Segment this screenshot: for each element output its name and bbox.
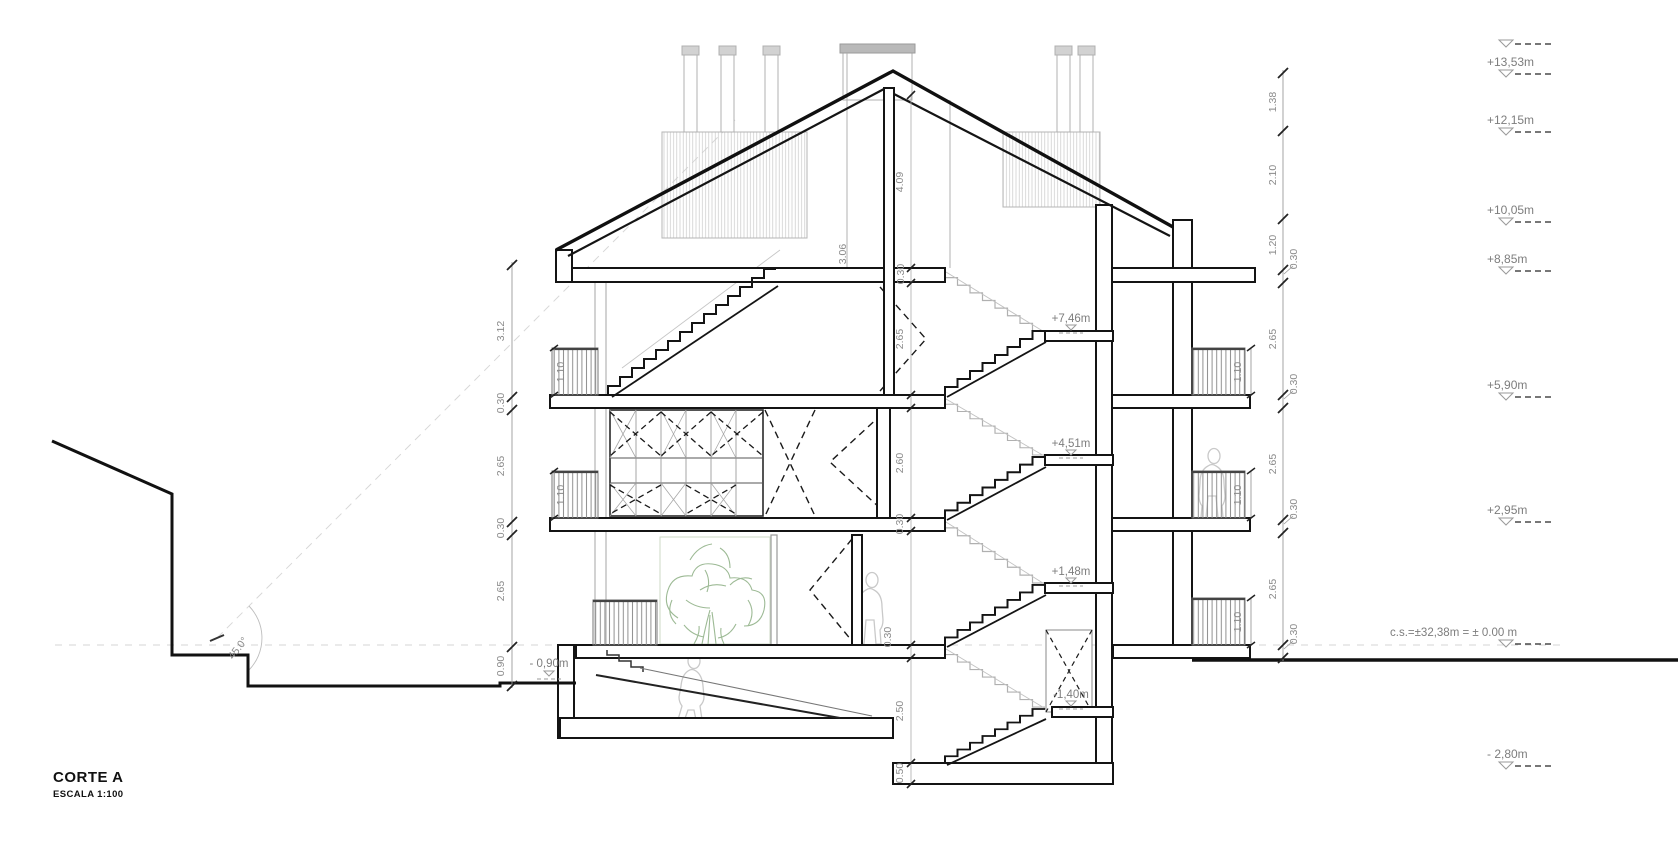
right-outer-wall [1173,220,1192,658]
dim-label: 0.90 [495,656,507,677]
dim-label: 0.30 [495,518,507,539]
roof-inner-line [894,94,1170,236]
dim-label: 2.65 [495,581,507,602]
ramp-line [640,668,872,716]
dim-label: 1.10 [1232,612,1244,633]
level-label: +1,48m [1052,566,1091,578]
dim-label: 4.09 [894,172,906,193]
chimney-stack [765,55,778,132]
chimney-cap [763,46,780,55]
level-label: +2,95m [1487,503,1527,517]
dim-label: 2.65 [1267,579,1279,600]
garage-ramp [596,650,872,718]
chimney-cap [719,46,736,55]
chimney-stack [721,55,734,132]
dim-label: 3.06 [837,244,849,265]
interior-wall [877,408,890,518]
chimney-cap [682,46,699,55]
level-label: -1,40m [1053,689,1089,701]
stair-landing [1045,583,1113,593]
dim-label: 1.20 [1267,235,1279,256]
dim-label: 0.30 [1288,499,1300,520]
level-label: +7,46m [1052,313,1091,325]
level-label: +5,90m [1487,378,1527,392]
partition-beyond [771,535,777,645]
drawing-title: CORTE A [53,769,123,786]
drawing-scale: ESCALA 1:100 [53,789,123,800]
site-level-note: c.s.=±32,38m = ± 0.00 m [1390,627,1517,639]
dim-label: 0.30 [895,264,907,285]
dim-label: 0.30 [1288,374,1300,395]
dim-label: 1.10 [555,362,567,383]
neighbor-facade-left [662,132,807,238]
stair-landing [1045,455,1113,465]
chimney-cap [1078,46,1095,55]
patio-fence [593,600,657,645]
structure-cut [52,71,1678,784]
third-floor-slab [550,395,945,408]
level-label: +12,15m [1487,113,1534,127]
chimney-cap [1055,46,1072,55]
dim-label: 3.12 [495,321,507,342]
dim-label: 2.65 [495,456,507,477]
central-chimney-cap [840,44,915,53]
dim-label: 2.65 [1267,454,1279,475]
ground-slab [1113,645,1250,658]
chimney-stack [684,55,697,132]
dim-label: 0.30 [894,514,906,535]
chimney-wall [884,88,894,395]
courtyard-tree [660,537,770,645]
ramp-line [596,675,840,718]
dim-label: 1.10 [1232,362,1244,383]
wardrobes [610,410,763,516]
level-label: +8,85m [1487,252,1527,266]
basement-slab [560,718,893,738]
angle-vertex-tick [210,635,224,641]
attic-stair-soffit [612,286,778,397]
terrain-left [52,441,576,686]
interior-wall [852,535,862,645]
second-floor-slab [550,518,945,531]
basement-slab-deep [893,763,1113,784]
dim-label: 0.30 [495,393,507,414]
dimension-chain-left: 3.12 0.30 2.65 0.30 2.65 0.90 [495,260,517,691]
level-label: - 0,90m [530,658,569,670]
dim-label: 2.50 [894,701,906,722]
door-swing-chevron [810,539,852,641]
attic-stair-flight [608,269,776,395]
door-swing-x [765,410,815,516]
dim-label: 1.10 [1232,485,1244,506]
dimension-chain-right: 1.38 2.10 1.20 0.30 2.65 0.30 2.65 0.30 … [1267,68,1300,663]
dim-label: 2.10 [1267,165,1279,186]
dim-label: 2.65 [1267,329,1279,350]
stairwell-wall [1096,205,1112,784]
angle-arc [249,606,262,670]
dim-label: 0.50 [894,763,906,784]
door-swing-chevron [830,414,882,510]
dim-label: 0.30 [882,627,894,648]
dim-label: 2.60 [894,453,906,474]
second-floor-slab [1112,518,1250,531]
section-drawing-sheet: 3.12 0.30 2.65 0.30 2.65 0.90 1.38 2.10 … [0,0,1678,842]
level-label: +10,05m [1487,203,1534,217]
dim-label: 0.30 [1288,624,1300,645]
third-floor-slab [1112,395,1250,408]
level-label: +4,51m [1052,438,1091,450]
corte-a-drawing: 3.12 0.30 2.65 0.30 2.65 0.90 1.38 2.10 … [0,0,1678,842]
neighbor-facade-right [1003,132,1100,207]
dim-label: 1.10 [555,485,567,506]
title-block: CORTE A ESCALA 1:100 [53,769,123,800]
dim-label: 2.65 [894,329,906,350]
level-label: +13,53m [1487,55,1534,69]
tree-foliage [666,544,764,645]
dim-label: 1.38 [1267,92,1279,113]
level-label: - 2,80m [1487,747,1528,761]
chimney-stack [1080,55,1093,132]
stair-landing [1045,331,1113,341]
attic-slab-overhang [1112,268,1255,282]
chimney-stack [1057,55,1070,132]
dim-label: 0.30 [1288,249,1300,270]
